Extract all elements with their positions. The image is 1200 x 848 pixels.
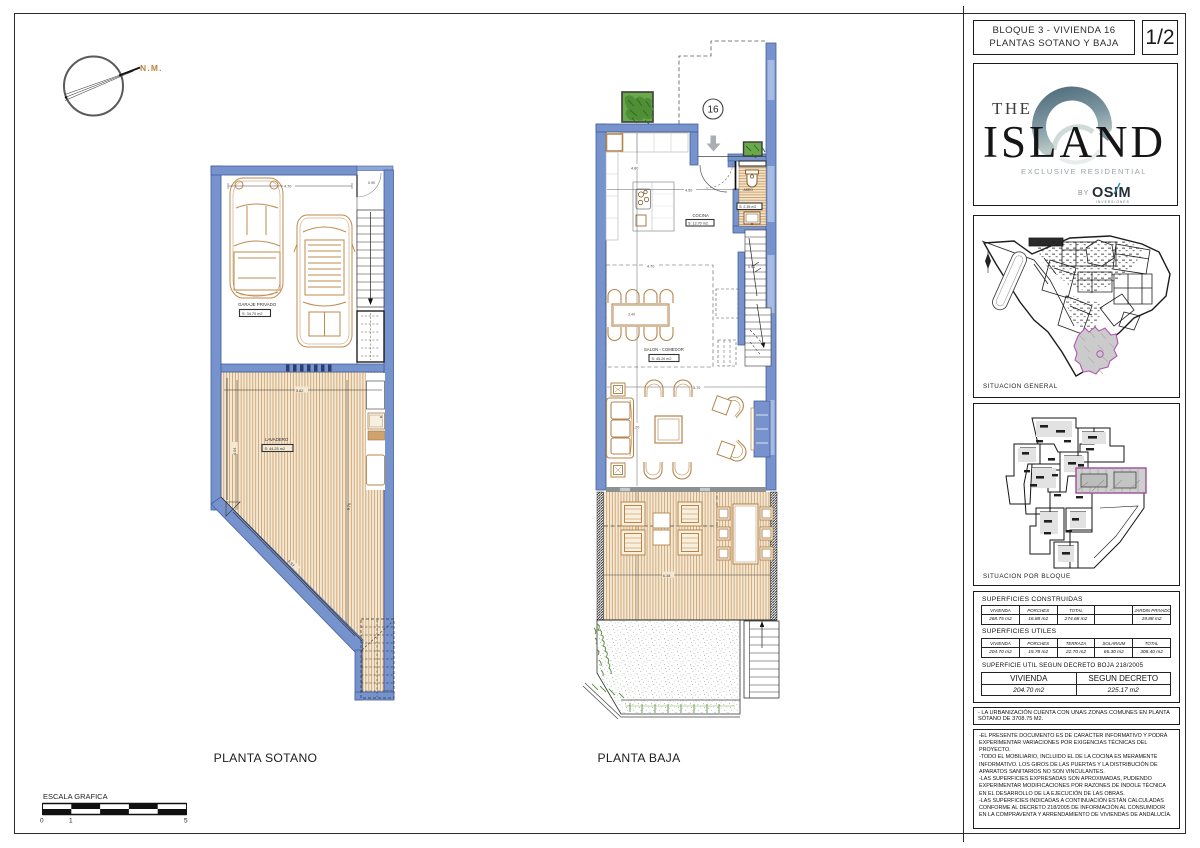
svg-text:5.70: 5.70 — [693, 386, 700, 390]
svg-text:1: 1 — [69, 818, 73, 825]
svg-text:ASEO: ASEO — [744, 188, 754, 192]
svg-text:4.70: 4.70 — [284, 185, 291, 189]
svg-text:4.04: 4.04 — [233, 448, 237, 455]
svg-text:0.90: 0.90 — [368, 181, 375, 185]
svg-text:GARAJE PRIVADO: GARAJE PRIVADO — [238, 302, 277, 307]
svg-text:0: 0 — [40, 818, 44, 825]
svg-text:COCINA: COCINA — [693, 213, 709, 218]
svg-text:ESCALA GRAFICA: ESCALA GRAFICA — [43, 792, 108, 801]
svg-text:3.40: 3.40 — [628, 313, 635, 317]
svg-text:5.62: 5.62 — [296, 389, 303, 393]
svg-text:S: 44.25 m2: S: 44.25 m2 — [265, 447, 285, 451]
svg-text:S: 45.20 m2: S: 45.20 m2 — [652, 357, 672, 361]
svg-text:LAVADERO: LAVADERO — [265, 437, 289, 442]
svg-text:PLANTA SOTANO: PLANTA SOTANO — [214, 751, 318, 765]
svg-text:6.38: 6.38 — [663, 574, 670, 578]
svg-text:S: 13.70 m2: S: 13.70 m2 — [688, 222, 708, 226]
svg-text:SITUACION GENERAL: SITUACION GENERAL — [983, 383, 1058, 390]
svg-text:4.80: 4.80 — [631, 166, 638, 170]
svg-text:4.70: 4.70 — [647, 264, 654, 268]
svg-text:SITUACION POR BLOQUE: SITUACION POR BLOQUE — [983, 573, 1071, 580]
svg-text:16: 16 — [707, 105, 719, 116]
svg-text:PLANTA BAJA: PLANTA BAJA — [598, 751, 682, 765]
svg-text:0.90: 0.90 — [748, 265, 755, 269]
svg-text:S: 2.35 m2: S: 2.35 m2 — [739, 205, 756, 209]
svg-text:S: 34.70 m2: S: 34.70 m2 — [242, 312, 262, 316]
svg-text:5: 5 — [184, 818, 188, 825]
svg-text:BY: BY — [1078, 190, 1089, 197]
svg-text:ISLAND: ISLAND — [983, 117, 1166, 167]
svg-text:4.50: 4.50 — [685, 189, 692, 193]
svg-text:N.M.: N.M. — [140, 63, 163, 73]
svg-text:OSIM: OSIM — [1092, 185, 1131, 201]
svg-text:EXCLUSIVE RESIDENTIAL: EXCLUSIVE RESIDENTIAL — [1021, 167, 1147, 176]
svg-text:SALON - COMEDOR: SALON - COMEDOR — [644, 347, 684, 352]
svg-text:THE: THE — [992, 99, 1033, 118]
svg-text:INVERSIONES: INVERSIONES — [1096, 200, 1130, 204]
